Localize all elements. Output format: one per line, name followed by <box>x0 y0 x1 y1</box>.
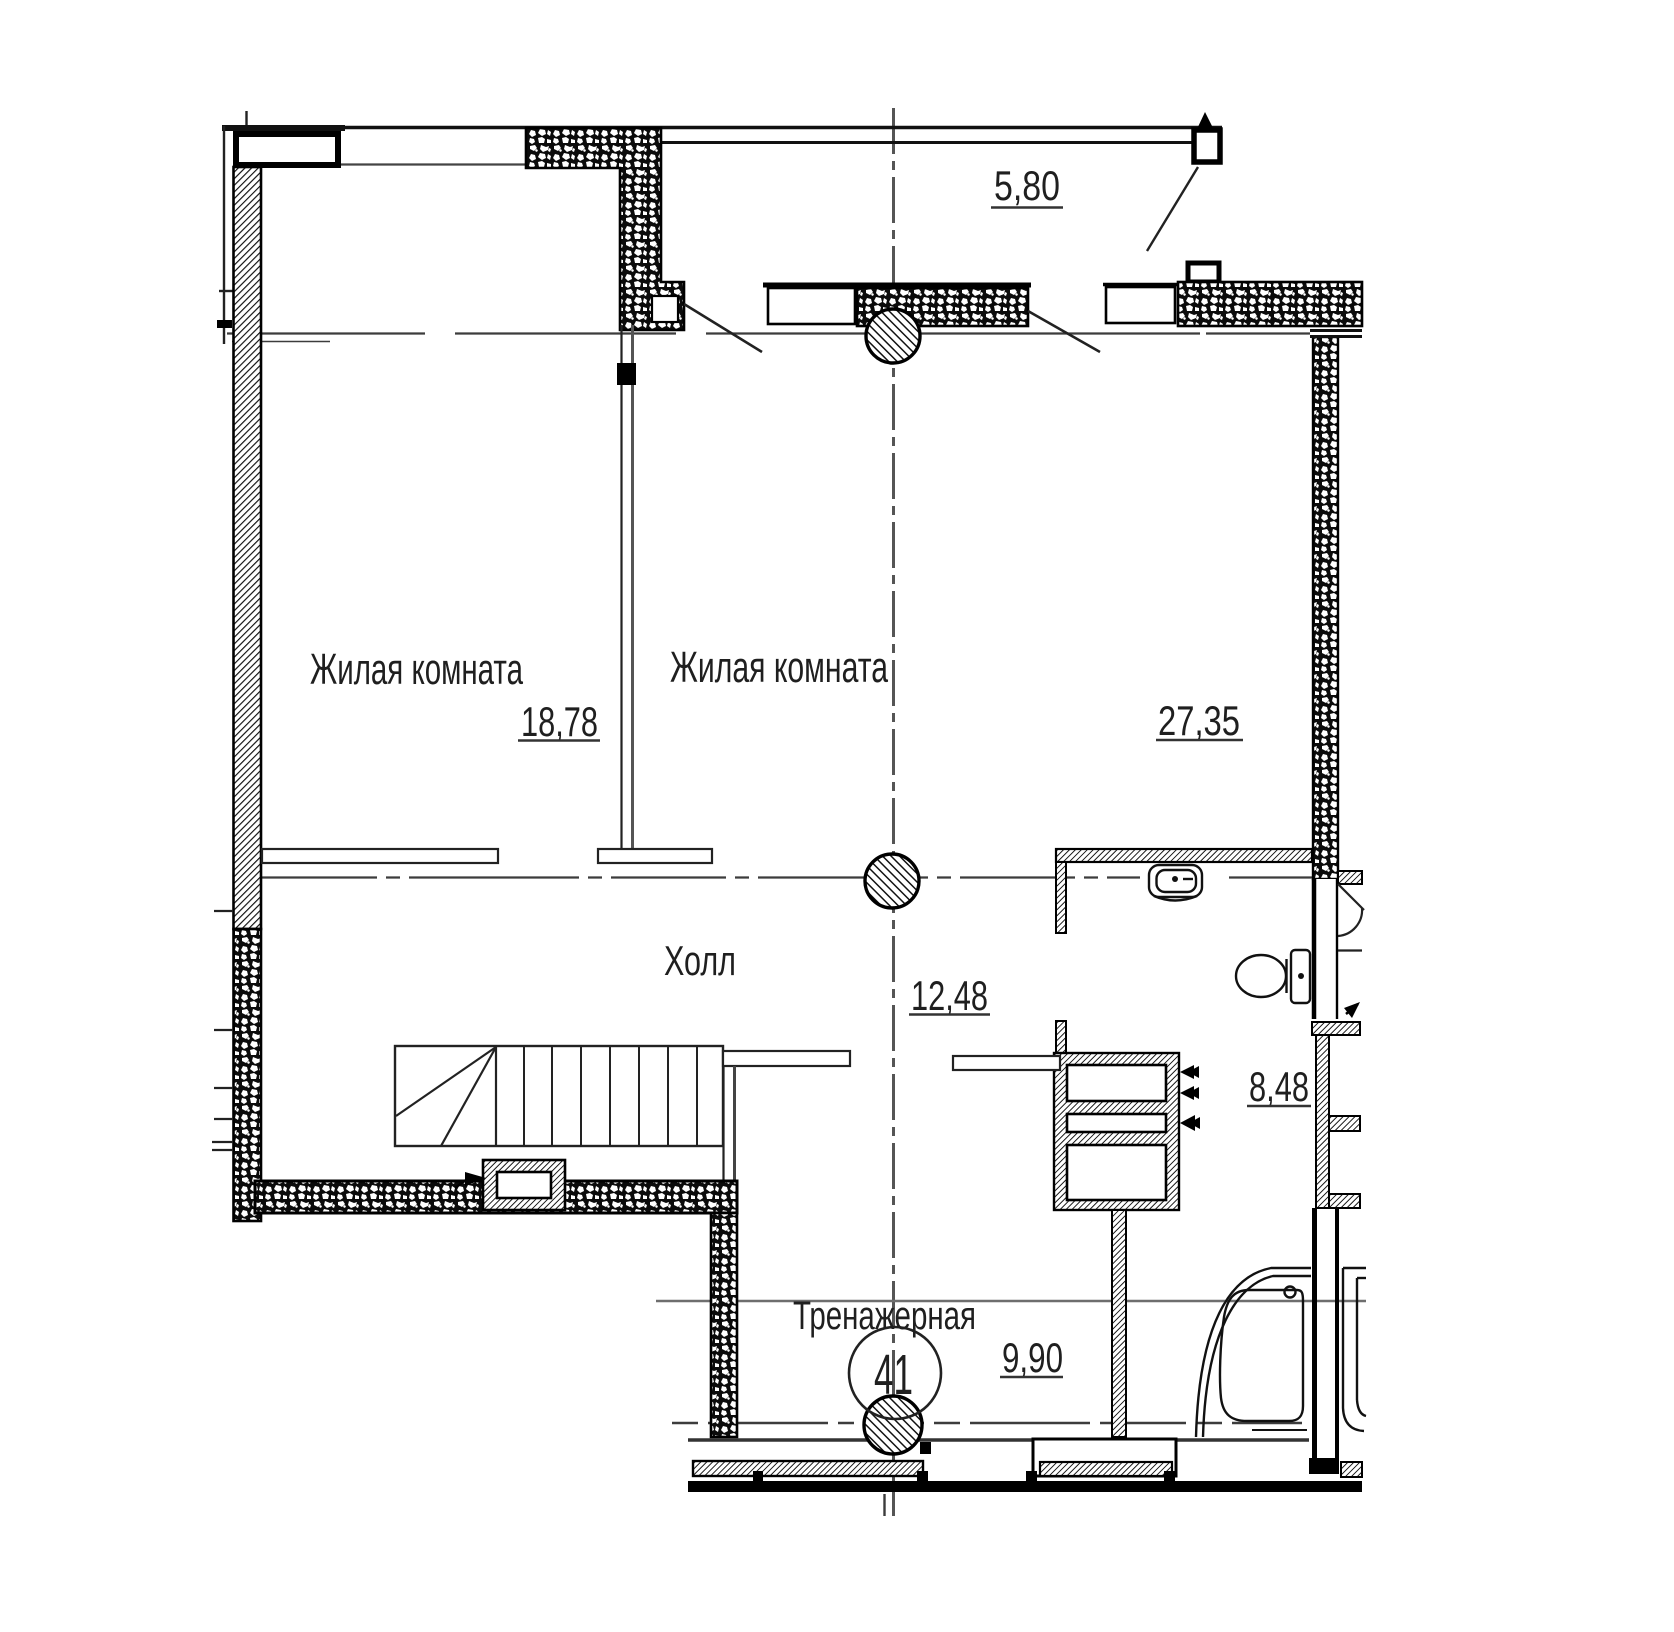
svg-text:Жилая комната: Жилая комната <box>310 645 523 694</box>
svg-text:27,35: 27,35 <box>1158 697 1240 744</box>
svg-text:5,80: 5,80 <box>994 162 1060 209</box>
svg-text:9,90: 9,90 <box>1002 1334 1063 1381</box>
svg-text:12,48: 12,48 <box>911 972 988 1019</box>
svg-text:18,78: 18,78 <box>521 698 598 745</box>
svg-text:Тренажерная: Тренажерная <box>793 1294 976 1338</box>
svg-text:Жилая комната: Жилая комната <box>670 643 888 692</box>
svg-text:Холл: Холл <box>664 937 736 984</box>
svg-text:41: 41 <box>874 1343 913 1407</box>
svg-text:8,48: 8,48 <box>1249 1063 1309 1110</box>
